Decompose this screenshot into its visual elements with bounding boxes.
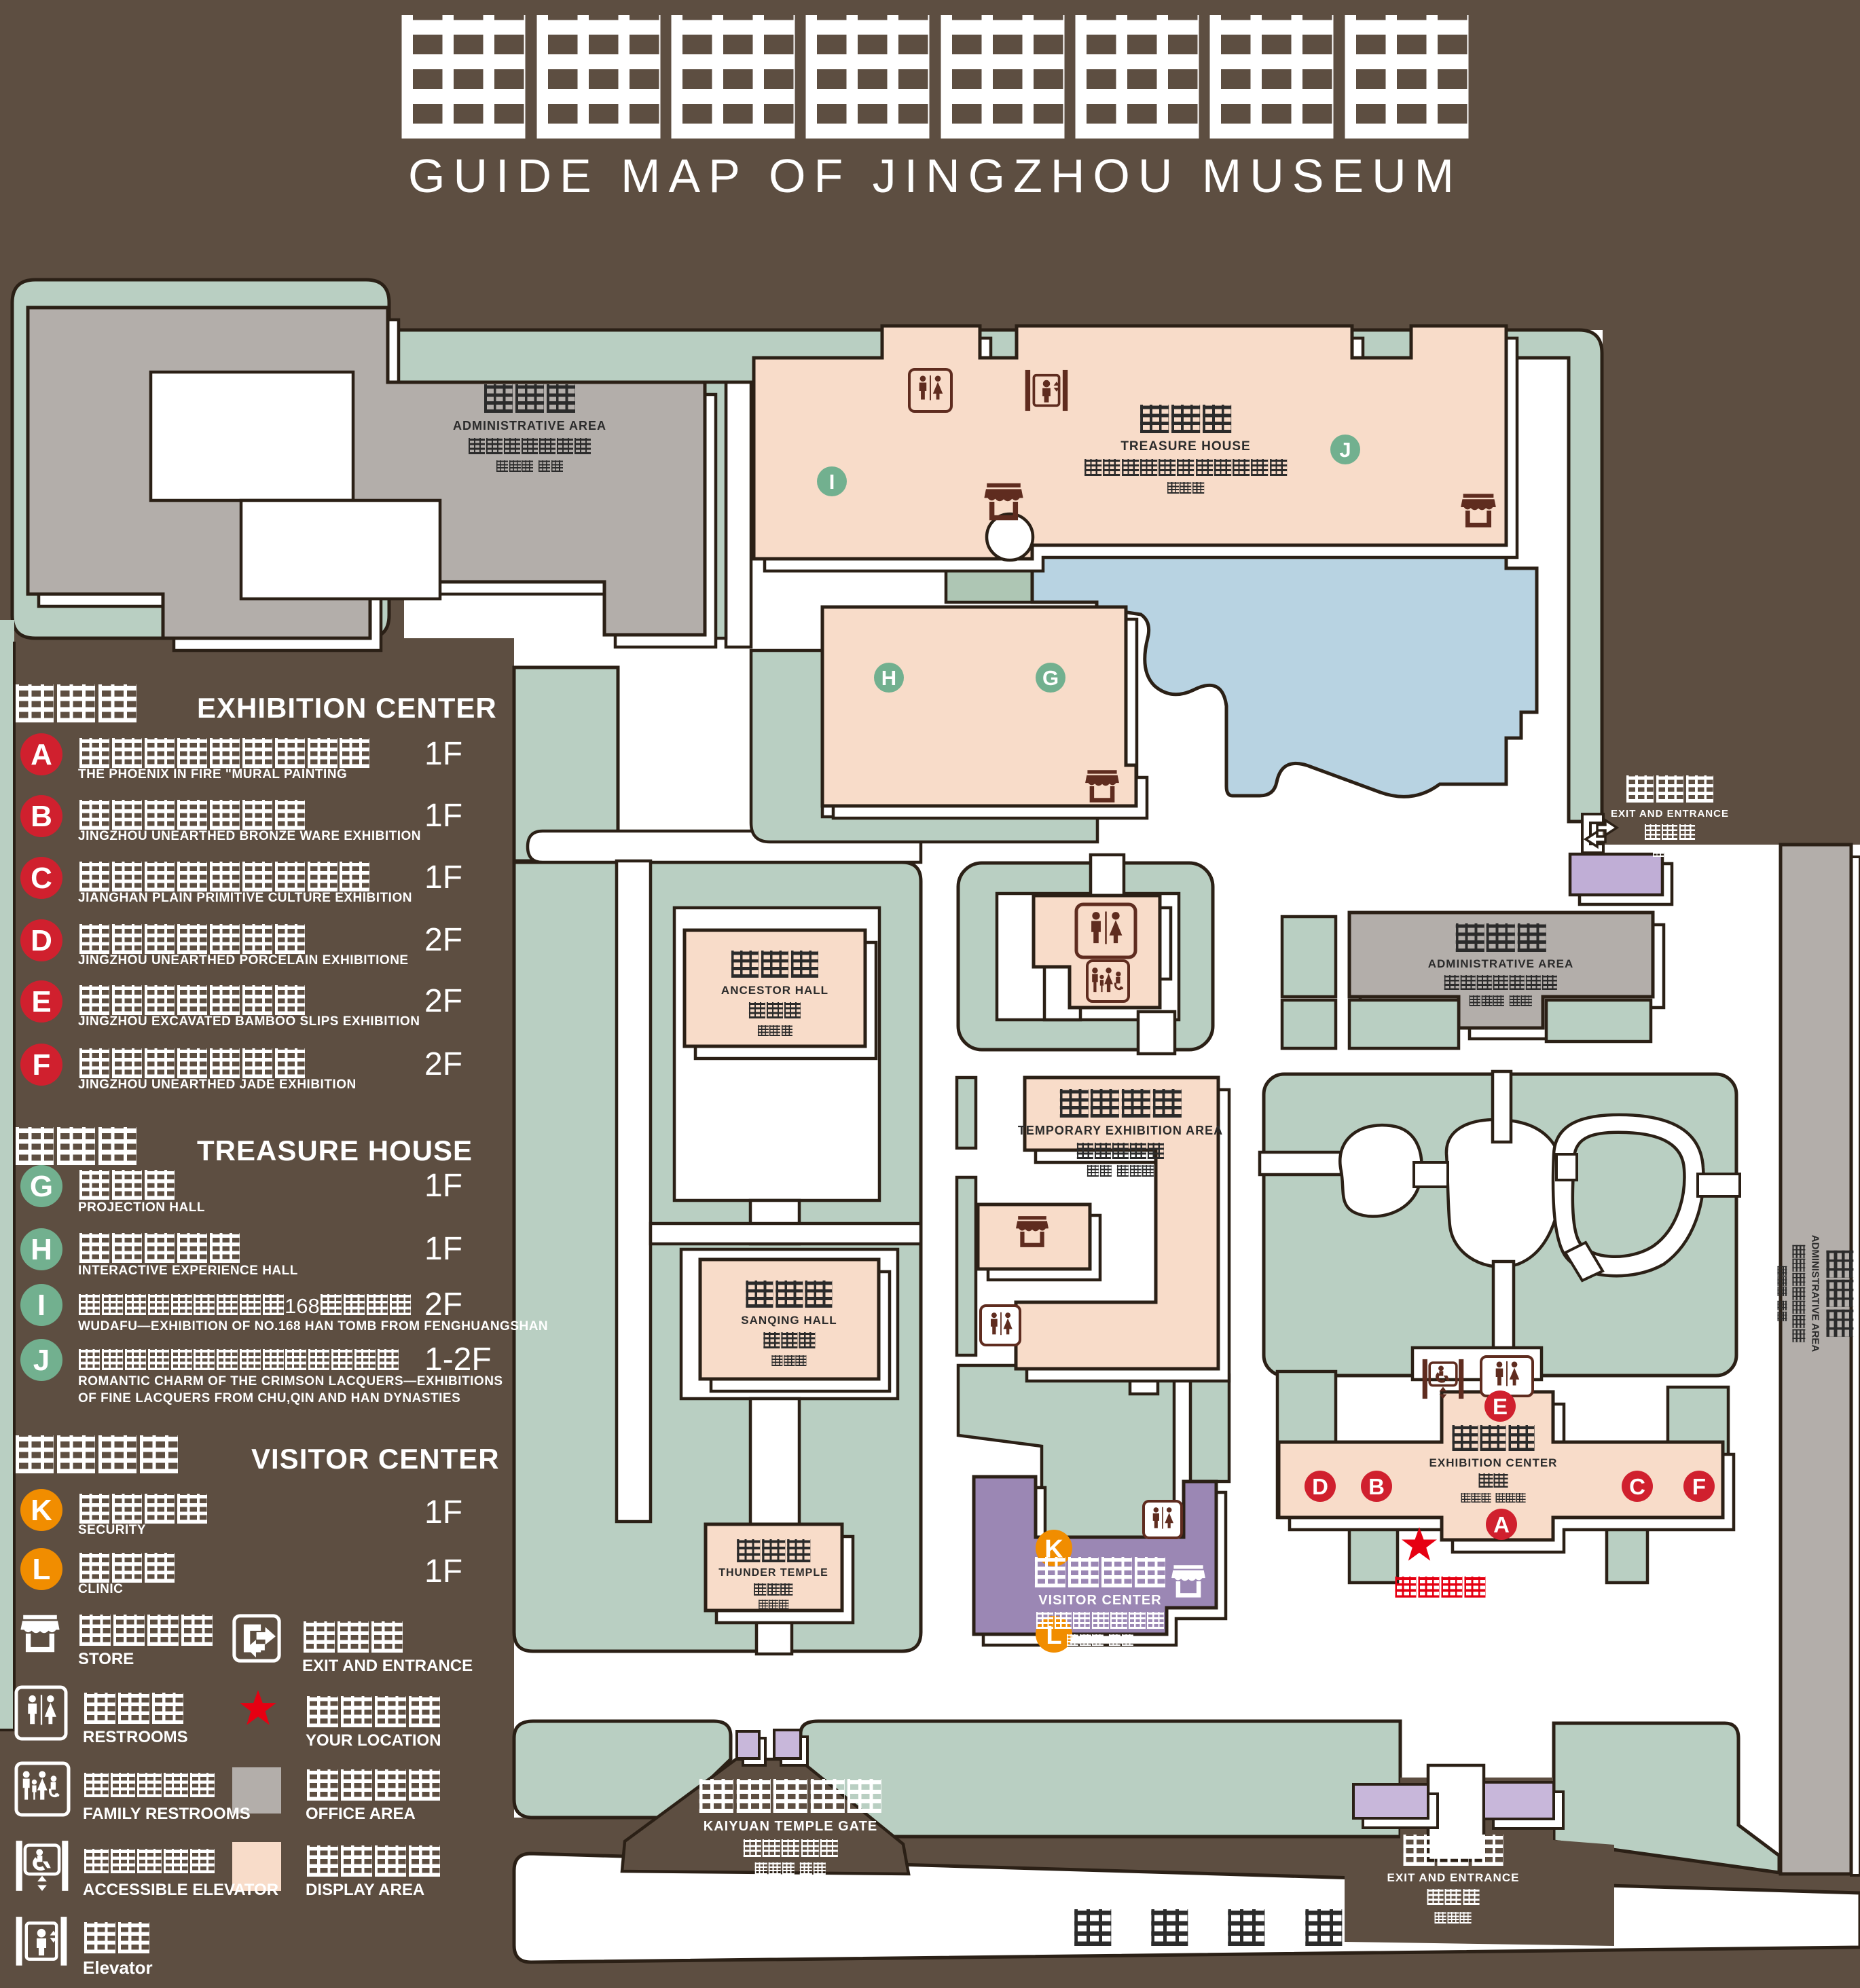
svg-text:K: K (31, 1494, 52, 1527)
svg-text:D: D (31, 924, 52, 957)
svg-text:I: I (829, 470, 835, 494)
svg-text:C: C (1629, 1474, 1645, 1499)
svg-text:F: F (1692, 1474, 1706, 1499)
svg-text:L: L (33, 1553, 51, 1586)
svg-text:J: J (1339, 438, 1351, 462)
svg-text:E: E (31, 985, 51, 1018)
svg-text:G: G (1042, 666, 1059, 690)
svg-text:H: H (31, 1233, 52, 1266)
svg-text:B: B (31, 800, 52, 833)
svg-text:J: J (33, 1344, 50, 1377)
svg-text:F: F (33, 1048, 51, 1082)
svg-text:D: D (1312, 1474, 1328, 1499)
svg-text:A: A (1493, 1512, 1510, 1537)
svg-text:A: A (31, 738, 52, 771)
svg-text:B: B (1368, 1474, 1385, 1499)
svg-text:E: E (1493, 1394, 1508, 1419)
svg-text:G: G (30, 1170, 53, 1203)
svg-text:H: H (881, 666, 896, 690)
svg-text:I: I (37, 1289, 45, 1322)
svg-text:C: C (31, 862, 52, 895)
